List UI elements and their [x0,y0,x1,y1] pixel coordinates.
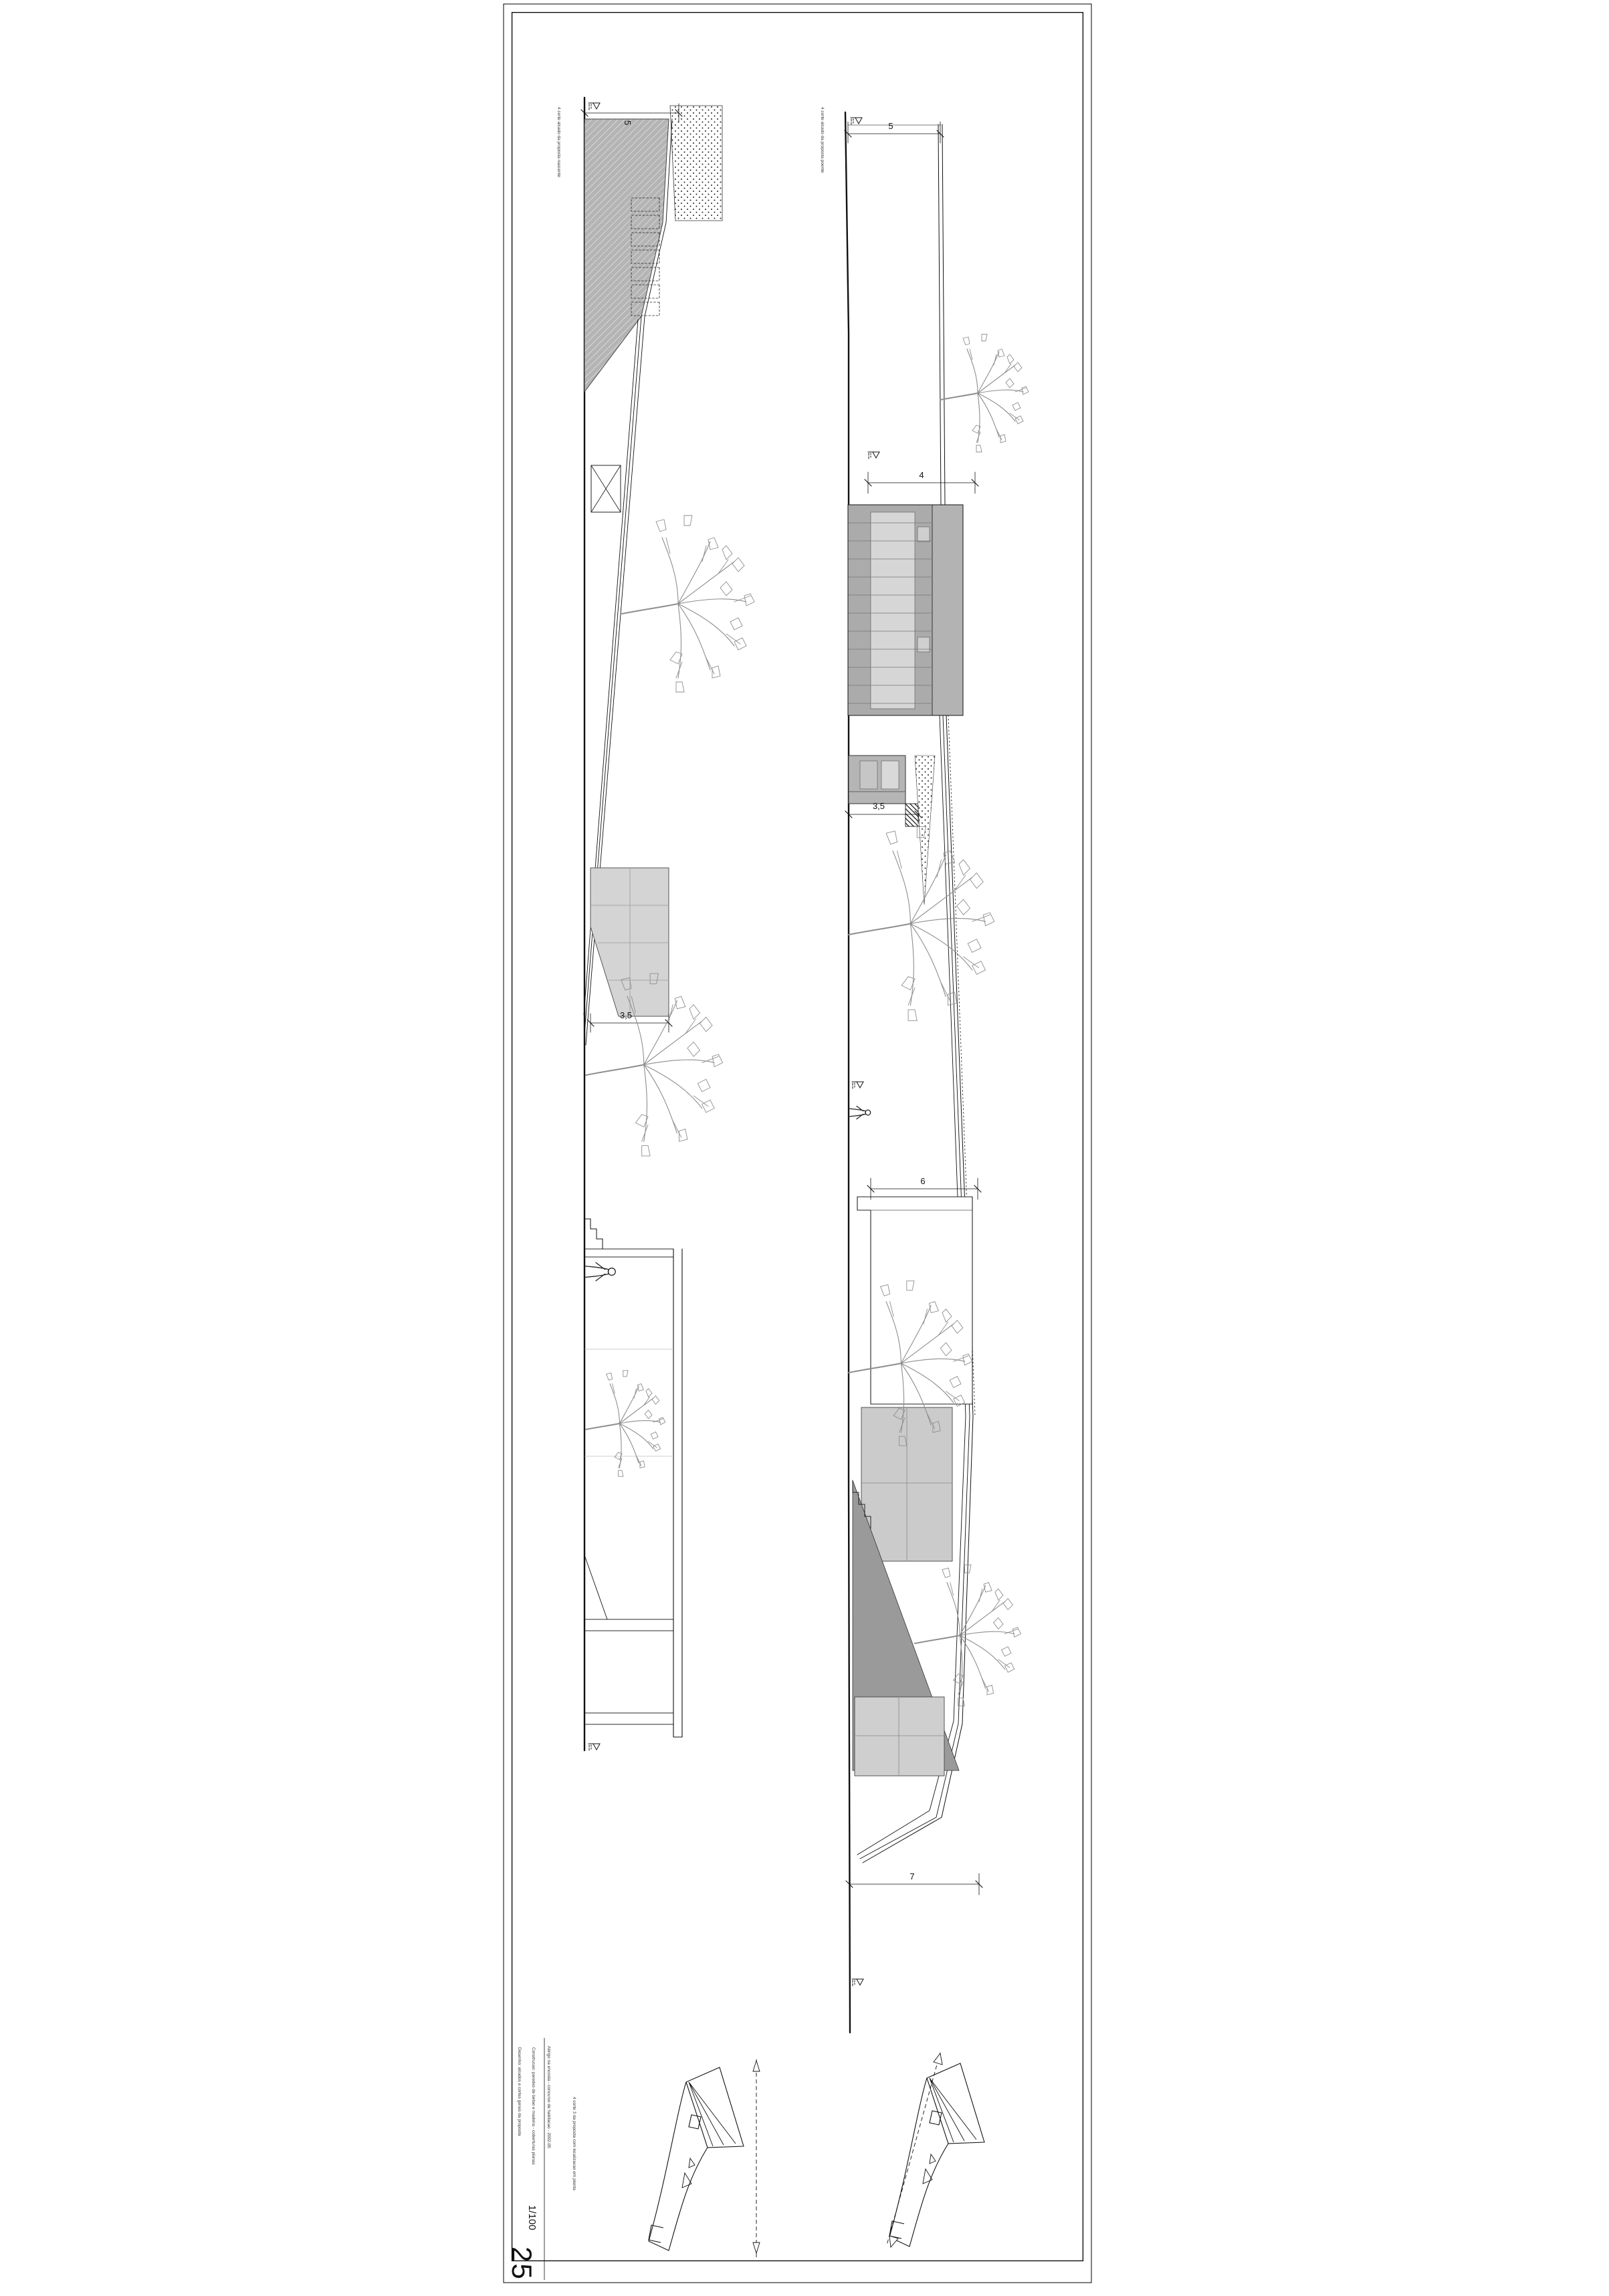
stipple-wedge-a [915,756,935,905]
tree-icon [940,334,1029,452]
person-icon [584,1262,615,1280]
dimension-a-5: 5 [845,121,944,143]
site-plan-2 [887,2053,984,2247]
building-a-hut [849,756,905,804]
pavilion-b [584,1209,682,1737]
section-arrow-icon [934,2053,942,2065]
tree-icon [622,515,754,692]
sheet-number: 25 [506,2247,538,2281]
dimension-label: 5 [888,121,893,131]
sheet-stage: 5 4 3,5 6 7 [512,12,1083,2261]
level-marker-icon [588,1744,600,1752]
dimension-label: 5 [623,120,633,125]
level-marker-icon [852,1979,863,1987]
title-line-2: Construcao: paredes de betao e madeira -… [531,2047,536,2165]
stipple-block-b [670,106,722,221]
person-icon [849,1106,871,1119]
building-a-right [853,1407,959,1776]
level-marker-icon [868,452,879,460]
section-line-icon [887,2053,940,2245]
dimension-label: 7 [909,1871,914,1881]
level-marker-icon [588,103,600,111]
title-block: Abrigo na encosta - concurso de habitaca… [506,2038,551,2281]
drawing-b-section: 5 3,5 4 corte alcado da proposta nascent… [556,98,754,1752]
site-plan-1 [649,2059,760,2257]
steps-b [584,1209,603,1249]
level-marker-icon [851,118,862,126]
section-arrow-icon [753,2243,760,2253]
drawing-sheet-page: 5 4 3,5 6 7 [0,0,1609,2296]
caption-drawing-a: 4 corte alcado da proposta poente [820,107,825,173]
building-a-main [848,505,963,715]
tree-icon [586,1371,665,1476]
terrace-b [591,868,669,1016]
dimension-a-7: 7 [846,1871,982,1895]
dimension-label: 3,5 [620,1010,632,1020]
level-marker-icon [852,1082,863,1090]
hatched-roof-mass [584,119,669,392]
ground-line-a [845,112,850,2033]
dimension-a-4: 4 [865,470,978,493]
scale-label: 1/100 [526,2205,538,2230]
dimension-label: 6 [920,1176,925,1186]
dimension-label: 4 [919,470,924,480]
caption-drawing-b: 4 corte alcado da proposta nascente [556,107,561,178]
x-brace-panel [591,465,621,512]
tree-icon [915,1565,1021,1706]
sheet-svg: 5 4 3,5 6 7 [512,12,1083,2261]
caption-site-plans: 4 corte 3 da proposta com localizacao em… [572,2097,576,2190]
drawing-a-section: 5 4 3,5 6 7 [820,107,1029,2033]
building-a-volume [857,1197,972,1404]
title-line-3: Desenho: alcados e cortes gerais da prop… [517,2047,522,2136]
title-line-1: Abrigo na encosta - concurso de habitaca… [546,2046,551,2148]
dimension-label: 3,5 [873,801,885,811]
section-arrow-icon [753,2061,760,2071]
